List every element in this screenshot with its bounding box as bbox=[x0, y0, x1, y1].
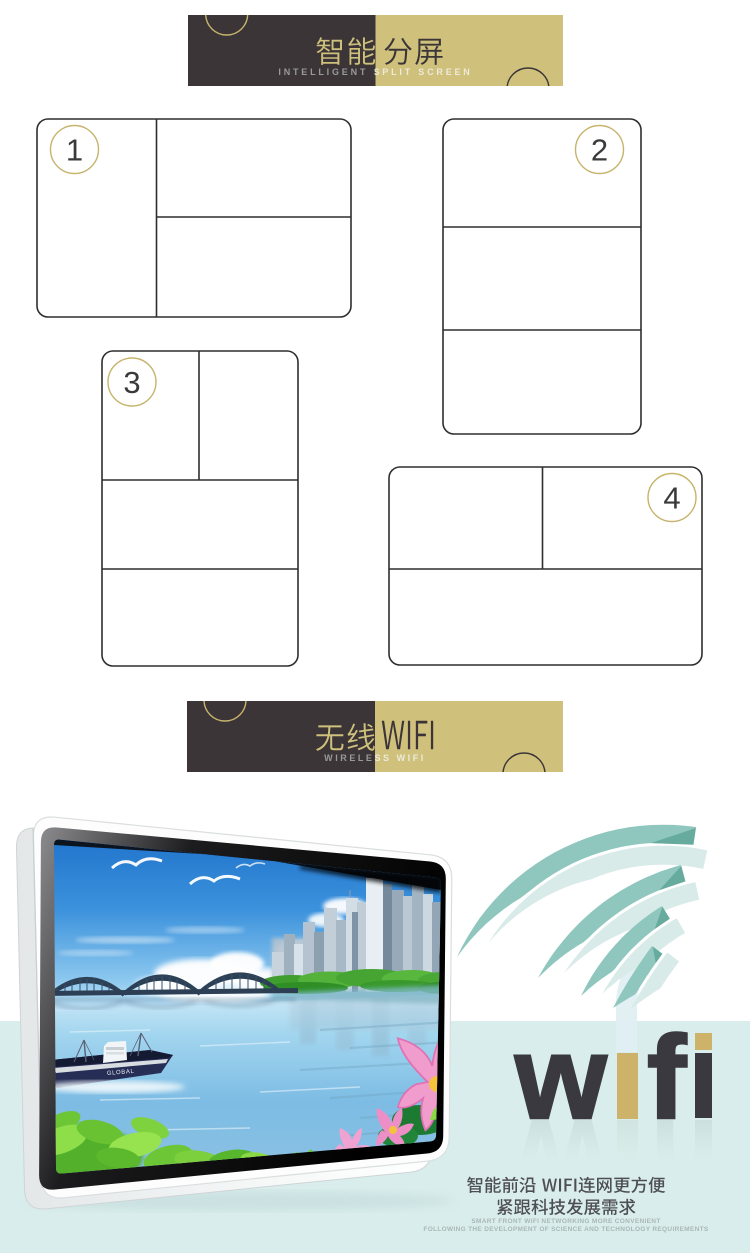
svg-text:1: 1 bbox=[66, 133, 83, 168]
svg-text:FOLLOWING THE DEVELOPMENT OF S: FOLLOWING THE DEVELOPMENT OF SCIENCE AND… bbox=[423, 1226, 709, 1233]
svg-text:2: 2 bbox=[591, 133, 608, 168]
svg-text:SMART FRONT WIFI NETWORKING MO: SMART FRONT WIFI NETWORKING MORE CONVENI… bbox=[471, 1218, 660, 1225]
svg-text:4: 4 bbox=[663, 481, 680, 516]
svg-text:3: 3 bbox=[123, 365, 140, 400]
